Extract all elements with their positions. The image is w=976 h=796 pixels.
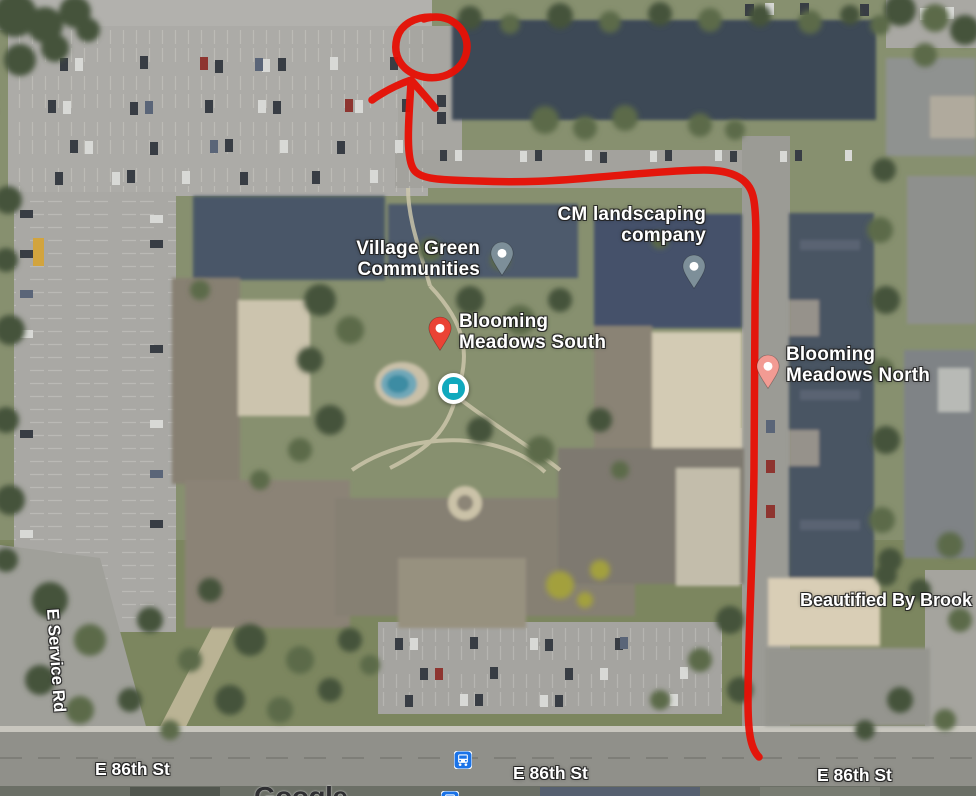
blooming-south-pin[interactable]	[427, 316, 453, 352]
bus-stop-icon-clipped[interactable]	[441, 791, 459, 796]
blooming-north-pin[interactable]	[755, 354, 781, 390]
google-watermark: Google	[254, 781, 347, 796]
bus-stop-icon[interactable]	[454, 751, 472, 769]
satellite-imagery	[0, 0, 976, 796]
teal-place-marker[interactable]	[438, 373, 469, 404]
cm-landscaping-pin[interactable]	[681, 254, 707, 290]
teal-marker-square-icon	[449, 384, 458, 393]
map-canvas[interactable]: Village Green Communities CM landscaping…	[0, 0, 976, 796]
village-green-pin[interactable]	[489, 241, 515, 277]
